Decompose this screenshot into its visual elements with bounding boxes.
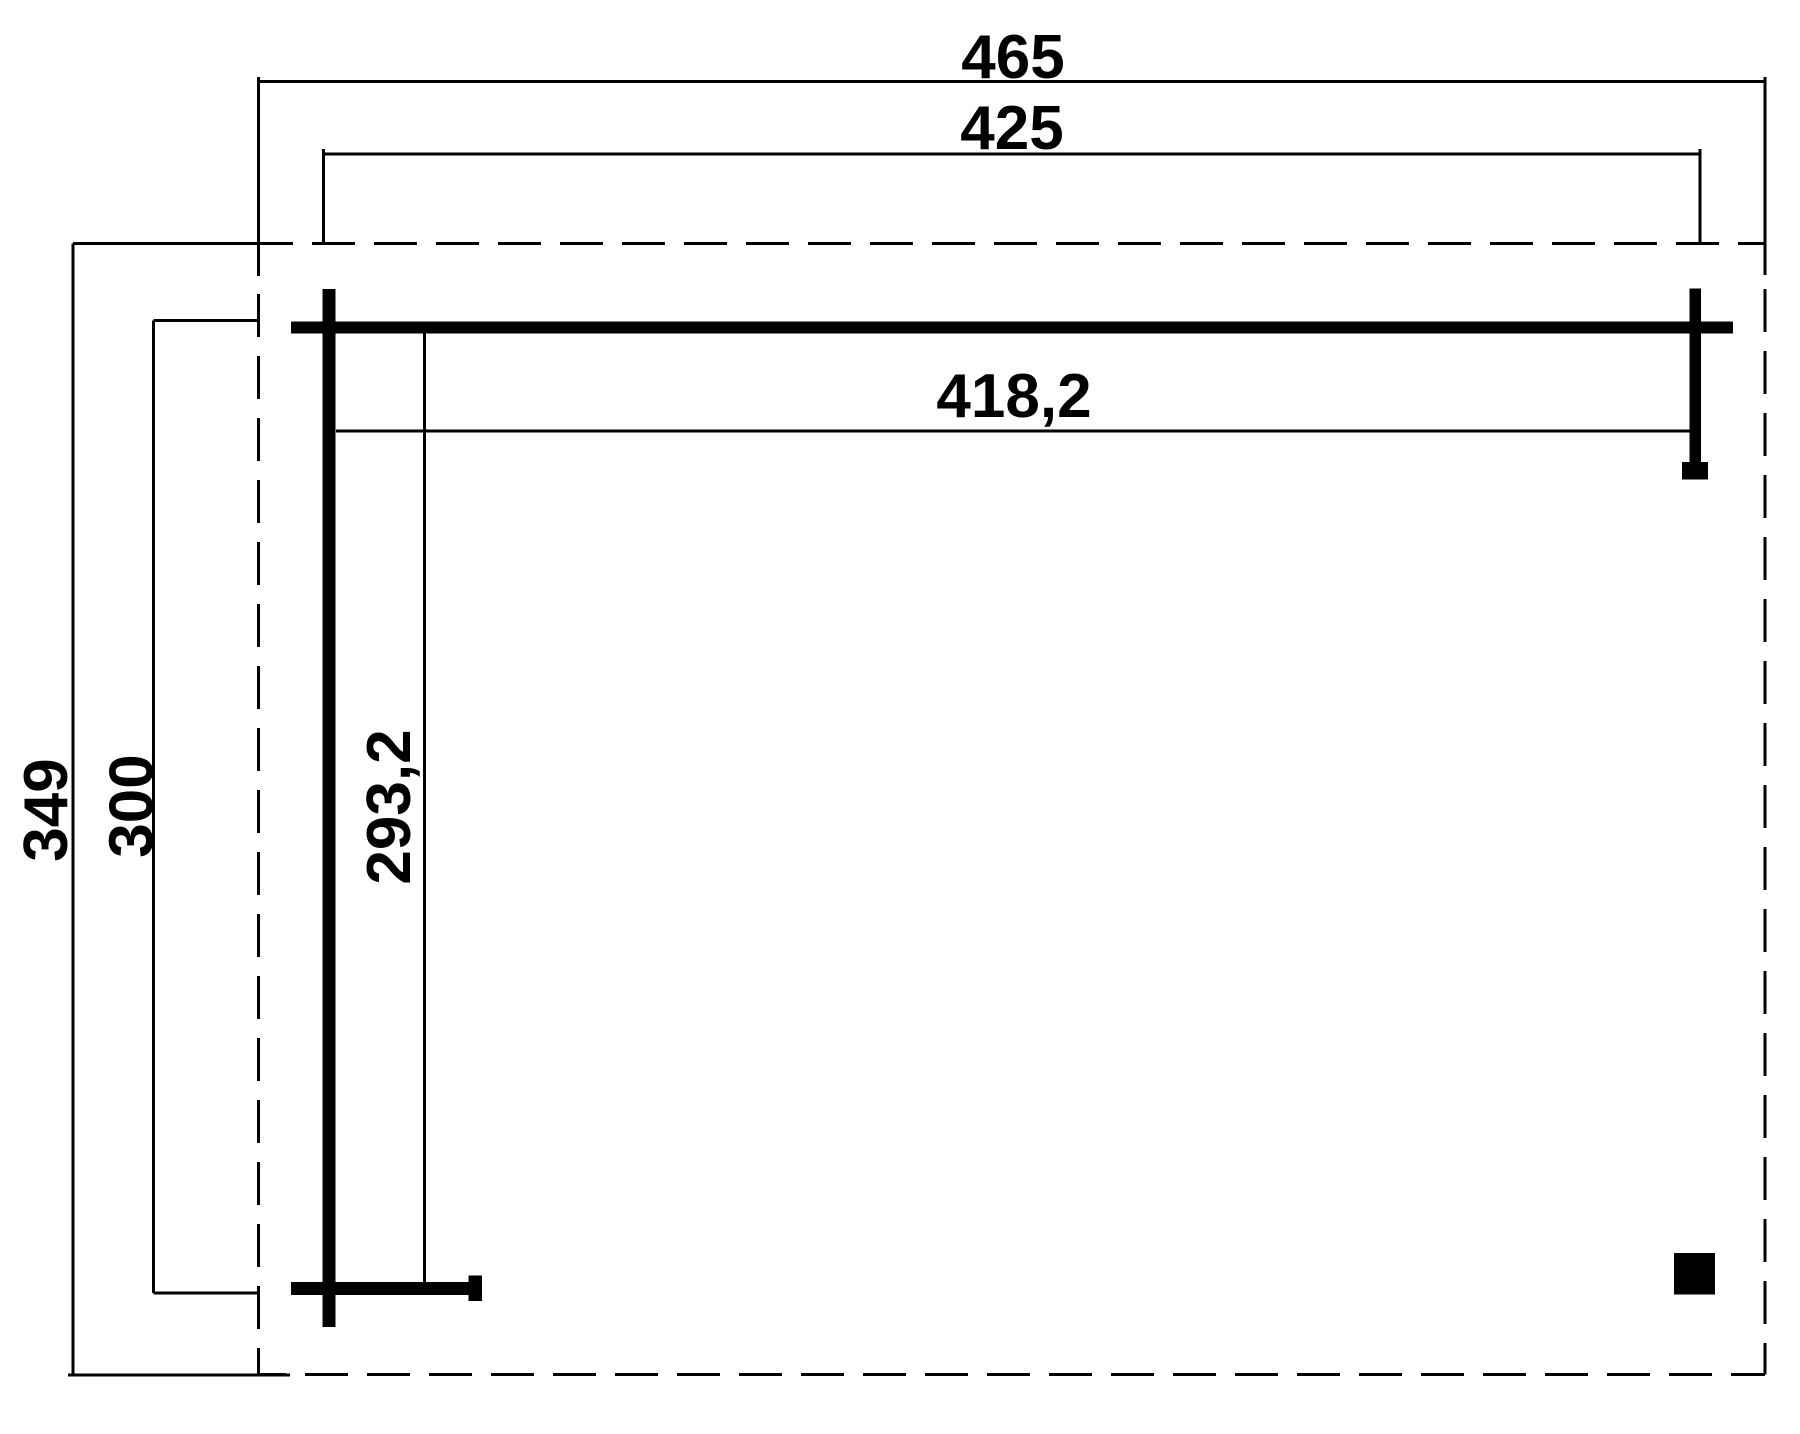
svg-text:418,2: 418,2 <box>936 362 1091 431</box>
svg-text:425: 425 <box>960 94 1063 163</box>
svg-text:300: 300 <box>98 754 167 857</box>
svg-text:293,2: 293,2 <box>355 729 424 884</box>
svg-text:349: 349 <box>12 758 81 861</box>
svg-text:465: 465 <box>961 23 1064 92</box>
